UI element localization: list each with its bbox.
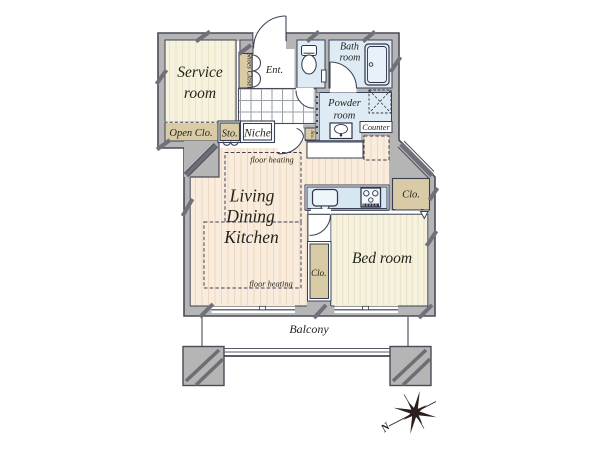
svg-text:room: room — [340, 53, 361, 64]
svg-text:Clo.: Clo. — [311, 268, 326, 278]
svg-text:room: room — [184, 85, 216, 102]
svg-text:Counter: Counter — [362, 123, 390, 132]
svg-text:room: room — [334, 111, 356, 122]
svg-text:Balcony: Balcony — [289, 322, 329, 336]
svg-text:Bed room: Bed room — [352, 250, 412, 267]
svg-text:Service: Service — [177, 64, 223, 81]
svg-text:Shoes Closet: Shoes Closet — [246, 53, 254, 90]
svg-text:Open Clo.: Open Clo. — [169, 128, 212, 139]
svg-text:Living: Living — [229, 186, 275, 206]
svg-text:Kitchen: Kitchen — [223, 227, 279, 247]
svg-text:floor heating: floor heating — [249, 280, 293, 289]
svg-text:Powder: Powder — [327, 98, 362, 109]
svg-text:Clo.: Clo. — [402, 190, 420, 201]
svg-text:Niche: Niche — [243, 128, 271, 140]
svg-text:Bath: Bath — [340, 42, 359, 53]
svg-text:Sto.: Sto. — [309, 130, 315, 139]
svg-text:Ent.: Ent. — [265, 65, 283, 76]
svg-text:floor heating: floor heating — [250, 156, 294, 165]
svg-text:Sto.: Sto. — [222, 129, 238, 140]
svg-text:Dining: Dining — [225, 206, 275, 226]
